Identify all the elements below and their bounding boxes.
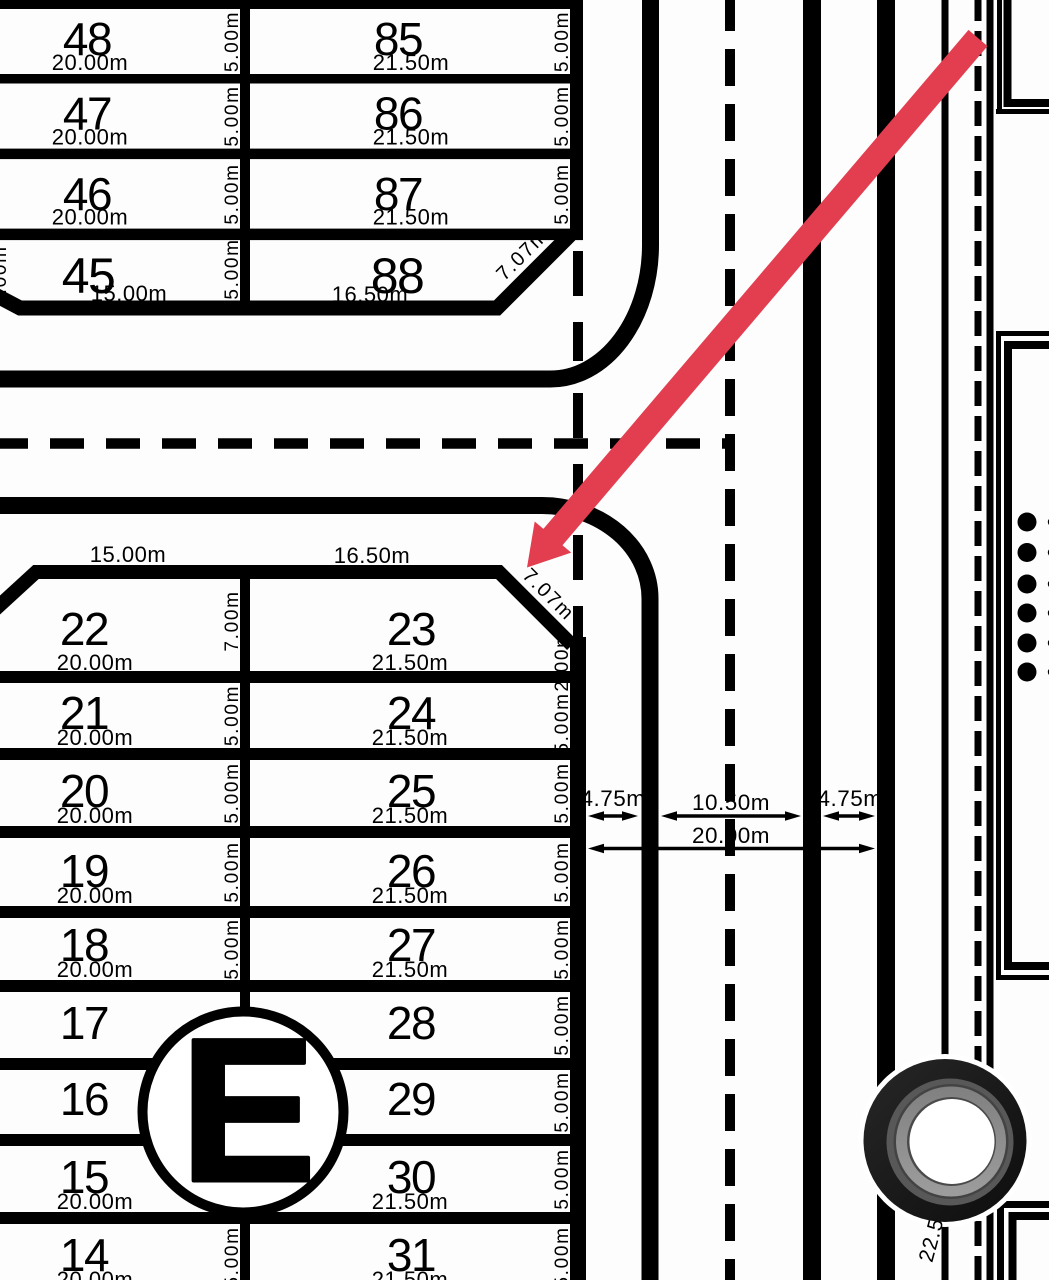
- svg-text:20.00m: 20.00m: [57, 883, 133, 908]
- svg-text:20.00m: 20.00m: [57, 725, 133, 750]
- svg-text:5.00m: 5.00m: [552, 163, 573, 224]
- svg-text:16: 16: [60, 1073, 108, 1125]
- svg-text:4.75m: 4.75m: [580, 786, 645, 811]
- svg-text:5.00m: 5.00m: [552, 11, 573, 72]
- svg-text:21.50m: 21.50m: [372, 650, 448, 675]
- svg-text:20.00m: 20.00m: [57, 803, 133, 828]
- svg-text:29: 29: [387, 1073, 435, 1125]
- svg-text:22: 22: [60, 603, 108, 655]
- svg-text:E: E: [180, 997, 316, 1225]
- svg-text:4.75m: 4.75m: [817, 786, 882, 811]
- svg-text:20.00m: 20.00m: [52, 124, 128, 149]
- svg-text:20.00m: 20.00m: [52, 204, 128, 229]
- svg-text:5.00m: 5.00m: [552, 994, 573, 1055]
- svg-text:21.50m: 21.50m: [372, 1267, 448, 1280]
- svg-text:5.00m: 5.00m: [552, 762, 573, 823]
- svg-text:21.50m: 21.50m: [373, 204, 449, 229]
- svg-text:20.00m: 20.00m: [52, 50, 128, 75]
- svg-text:21.50m: 21.50m: [372, 957, 448, 982]
- svg-text:5.00m: 5.00m: [222, 1226, 243, 1280]
- svg-text:20.00m: 20.00m: [57, 650, 133, 675]
- svg-text:5.00m: 5.00m: [222, 238, 243, 299]
- svg-text:5.00m: 5.00m: [222, 685, 243, 746]
- svg-text:20.00m: 20.00m: [57, 1267, 133, 1280]
- svg-text:15.00m: 15.00m: [91, 281, 167, 306]
- svg-text:5.00m: 5.00m: [222, 85, 243, 146]
- svg-text:21.50m: 21.50m: [373, 50, 449, 75]
- svg-text:15.00m: 15.00m: [90, 542, 166, 567]
- svg-text:5.00m: 5.00m: [552, 1226, 573, 1280]
- svg-text:5.00m: 5.00m: [552, 1071, 573, 1132]
- svg-text:23: 23: [387, 603, 435, 655]
- svg-text:5.00m: 5.00m: [552, 1148, 573, 1209]
- svg-text:5.00m: 5.00m: [222, 762, 243, 823]
- svg-text:10.50m: 10.50m: [692, 790, 770, 815]
- svg-text:21.50m: 21.50m: [372, 883, 448, 908]
- svg-text:21.50m: 21.50m: [372, 725, 448, 750]
- svg-text:21.50m: 21.50m: [373, 124, 449, 149]
- svg-text:5.00m: 5.00m: [552, 918, 573, 979]
- svg-text:16.50m: 16.50m: [334, 543, 410, 568]
- svg-text:7.00m: 7.00m: [222, 590, 243, 651]
- svg-text:5.00m: 5.00m: [222, 841, 243, 902]
- svg-text:20.00m: 20.00m: [692, 823, 770, 848]
- svg-text:5.00m: 5.00m: [222, 11, 243, 72]
- svg-text:16.50m: 16.50m: [332, 282, 408, 307]
- svg-text:5.00m: 5.00m: [552, 692, 573, 753]
- svg-text:21.50m: 21.50m: [372, 1189, 448, 1214]
- svg-text:20.00m: 20.00m: [57, 957, 133, 982]
- svg-text:20.00m: 20.00m: [57, 1189, 133, 1214]
- svg-text:5.00m: 5.00m: [552, 85, 573, 146]
- svg-text:5.00m: 5.00m: [552, 841, 573, 902]
- svg-text:5.00m: 5.00m: [222, 918, 243, 979]
- svg-text:28: 28: [387, 997, 435, 1049]
- svg-text:5.00m: 5.00m: [0, 245, 11, 306]
- svg-text:21.50m: 21.50m: [372, 803, 448, 828]
- svg-text:17: 17: [60, 997, 108, 1049]
- svg-text:5.00m: 5.00m: [222, 163, 243, 224]
